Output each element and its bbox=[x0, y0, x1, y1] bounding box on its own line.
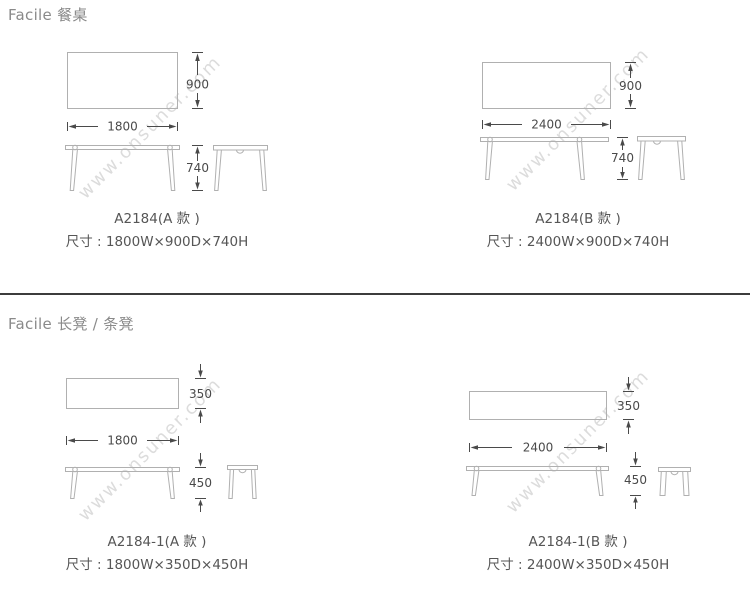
bench-a-size-text: 尺寸 : 1800W×350D×450H bbox=[7, 556, 307, 574]
bench-leg bbox=[229, 470, 234, 499]
drawing-table-b: 900 2400 740 bbox=[440, 40, 740, 205]
bench-b-top-view bbox=[470, 392, 607, 420]
bench-a-top-view bbox=[67, 379, 179, 409]
bench-leg bbox=[251, 470, 256, 499]
table-leg bbox=[168, 150, 175, 191]
table-a-front-view bbox=[66, 145, 180, 190]
table-leg bbox=[678, 141, 685, 180]
table-a-side-view bbox=[214, 146, 268, 191]
bench-b-label: A2184-1(B 款 ) 尺寸 : 2400W×350D×450H bbox=[428, 533, 728, 574]
drawing-table-a: 900 1800 740 bbox=[40, 40, 340, 205]
bench-b-top-view-outline bbox=[470, 392, 607, 420]
table-leg bbox=[70, 150, 77, 191]
table-a-top-view bbox=[68, 53, 178, 109]
table-leg bbox=[215, 150, 222, 191]
bench-leg bbox=[683, 472, 689, 496]
bench-a-top-view-outline bbox=[67, 379, 179, 409]
bench-seat bbox=[228, 466, 258, 470]
product-spec-sheet: www.onsuner.com www.onsuner.com www.onsu… bbox=[0, 0, 750, 611]
bench-leg bbox=[168, 472, 175, 499]
bench-a-front-view bbox=[66, 467, 180, 498]
table-a-top-view-outline bbox=[68, 53, 178, 109]
table-a-width-value: 1800 bbox=[107, 120, 138, 134]
bench-leg bbox=[596, 471, 603, 496]
bench-a-depth-value: 350 bbox=[189, 387, 212, 401]
table-leg bbox=[486, 142, 493, 180]
table-b-top-view-outline bbox=[483, 63, 611, 109]
table-leg bbox=[260, 150, 267, 191]
bench-b-depth-value: 350 bbox=[617, 399, 640, 413]
table-b-height-value: 740 bbox=[611, 151, 634, 165]
bench-a-width-value: 1800 bbox=[107, 434, 138, 448]
bench-seat bbox=[467, 467, 609, 471]
table-a-depth-value: 900 bbox=[186, 78, 209, 92]
bench-b-side-view bbox=[659, 468, 691, 496]
bench-seat bbox=[659, 468, 691, 472]
table-a-height-value: 740 bbox=[186, 161, 209, 175]
bench-a-height-value: 450 bbox=[189, 476, 212, 490]
table-leg bbox=[639, 141, 646, 180]
table-leg bbox=[577, 142, 584, 180]
table-b-depth-value: 900 bbox=[619, 79, 642, 93]
drawing-bench-b: 350 2400 450 bbox=[440, 360, 750, 525]
tabletop bbox=[638, 137, 686, 142]
bench-a-model-code: A2184-1(A 款 ) bbox=[7, 533, 307, 551]
section-title-dining-table: Facile 餐桌 bbox=[8, 4, 88, 25]
bench-leg bbox=[472, 471, 479, 496]
bench-b-model-code: A2184-1(B 款 ) bbox=[428, 533, 728, 551]
table-a-size-text: 尺寸 : 1800W×900D×740H bbox=[7, 233, 307, 251]
bench-b-front-view bbox=[467, 466, 609, 495]
table-b-top-view bbox=[483, 63, 611, 109]
bench-leg bbox=[71, 472, 78, 499]
table-b-model-code: A2184(B 款 ) bbox=[428, 210, 728, 228]
bench-b-size-text: 尺寸 : 2400W×350D×450H bbox=[428, 556, 728, 574]
bench-b-height-value: 450 bbox=[624, 473, 647, 487]
table-b-width-value: 2400 bbox=[531, 118, 562, 132]
table-a-label: A2184(A 款 ) 尺寸 : 1800W×900D×740H bbox=[7, 210, 307, 251]
tabletop bbox=[66, 146, 180, 150]
bench-leg bbox=[660, 472, 666, 496]
table-a-model-code: A2184(A 款 ) bbox=[7, 210, 307, 228]
bench-b-width-value: 2400 bbox=[523, 441, 554, 455]
tabletop bbox=[214, 146, 268, 151]
table-b-front-view bbox=[481, 137, 609, 179]
section-divider bbox=[0, 293, 750, 295]
tabletop bbox=[481, 138, 609, 142]
table-b-side-view bbox=[638, 137, 686, 180]
bench-seat bbox=[66, 468, 180, 472]
bench-a-side-view bbox=[228, 466, 258, 499]
drawing-bench-a: 350 1800 450 bbox=[40, 360, 340, 525]
table-b-size-text: 尺寸 : 2400W×900D×740H bbox=[428, 233, 728, 251]
table-b-label: A2184(B 款 ) 尺寸 : 2400W×900D×740H bbox=[428, 210, 728, 251]
section-title-bench: Facile 长凳 / 条凳 bbox=[8, 313, 134, 334]
bench-a-label: A2184-1(A 款 ) 尺寸 : 1800W×350D×450H bbox=[7, 533, 307, 574]
